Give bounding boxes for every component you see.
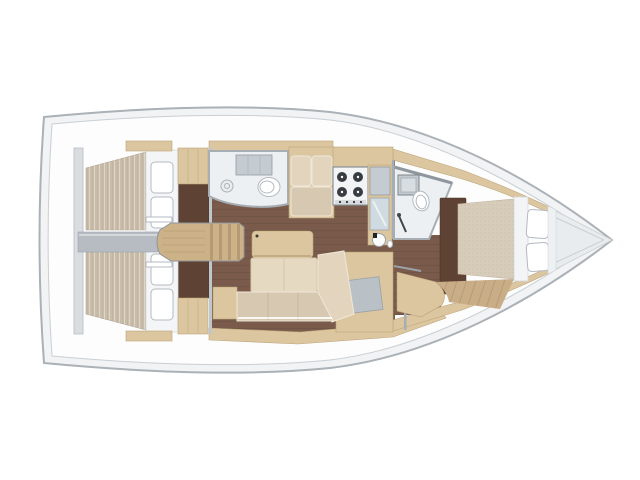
settee-seat-cushion [291,187,332,216]
hatch-rail [146,262,172,267]
cabin-wall [209,250,212,334]
headboard [548,206,556,274]
pillow [526,209,550,238]
pillow [151,162,173,193]
hatch-rail [146,217,172,222]
shower-head [397,213,401,217]
shower-locker [236,155,272,175]
floorplan-canvas [0,0,640,480]
aft-head [209,151,288,207]
stove [333,167,368,205]
pillow [151,289,173,320]
shelf [126,141,172,151]
berth-frame [514,197,528,281]
toilet [258,178,280,197]
pillow [526,242,550,271]
yacht-floorplan [0,0,640,480]
wardrobe [178,298,208,334]
galley-counter-top [370,167,390,195]
table-fitting [256,235,259,238]
washbasin [221,180,233,192]
door-handle [388,241,393,248]
salon-table [252,231,313,258]
mattress-texture [458,199,514,279]
sofa-seat [237,292,333,321]
wardrobe [178,148,208,184]
sink-faucet [373,233,377,238]
settee-back-cushion [291,156,311,186]
bulkhead-wall-upper [392,160,395,239]
settee-back-cushion [312,156,332,186]
galley-top-cabinet [333,147,393,167]
settee [289,147,334,218]
sofa-side-cabinet [213,287,237,319]
washbasin [401,178,416,192]
shelf [126,331,172,341]
